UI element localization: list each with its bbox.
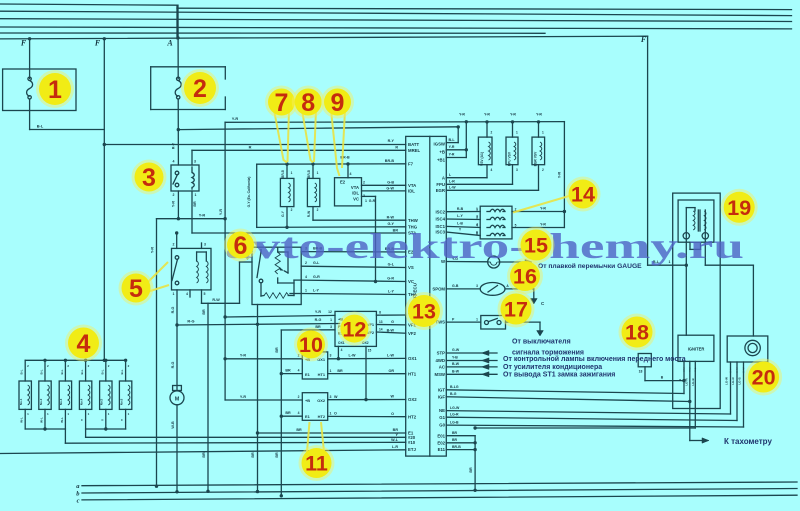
svg-text:Y-R: Y-R: [557, 172, 562, 179]
svg-text:BR: BR: [285, 411, 291, 415]
svg-text:L-B: L-B: [457, 222, 463, 226]
svg-text:B: B: [661, 376, 664, 380]
svg-text:4: 4: [186, 292, 188, 296]
svg-text:1: 1: [67, 412, 69, 416]
svg-text:L-Y: L-Y: [388, 290, 394, 294]
svg-text:1: 1: [730, 367, 732, 371]
svg-text:Y-R: Y-R: [540, 207, 546, 211]
svg-text:G-Y (Ex. California): G-Y (Ex. California): [247, 177, 251, 208]
svg-text:2: 2: [491, 131, 493, 135]
svg-text:LG-B: LG-B: [450, 420, 459, 424]
svg-text:5: 5: [204, 292, 206, 296]
svg-text:R-Y: R-Y: [388, 139, 395, 143]
svg-text:20: 20: [752, 366, 776, 390]
svg-text:4: 4: [173, 160, 175, 164]
svg-text:STP: STP: [437, 351, 445, 356]
svg-text:B-L: B-L: [37, 124, 44, 129]
svg-text:1: 1: [195, 193, 197, 197]
svg-text:4: 4: [350, 172, 352, 176]
svg-text:2: 2: [67, 364, 69, 368]
svg-text:HT1: HT1: [318, 372, 326, 377]
svg-text:No.1: No.1: [19, 398, 23, 405]
svg-text:3: 3: [476, 284, 478, 288]
svg-text:E01: E01: [437, 433, 445, 438]
svg-text:1: 1: [330, 412, 332, 416]
svg-text:Y-R: Y-R: [510, 113, 516, 117]
svg-text:R-G: R-G: [171, 306, 175, 313]
svg-text:2: 2: [27, 364, 29, 368]
svg-text:BR: BR: [452, 438, 458, 442]
svg-text:4: 4: [298, 369, 300, 373]
svg-text:Y-R: Y-R: [150, 247, 154, 253]
svg-text:4: 4: [341, 348, 343, 352]
svg-text:BR: BR: [469, 467, 473, 473]
svg-text:LG-R: LG-R: [731, 377, 735, 385]
svg-text:12: 12: [328, 310, 332, 314]
svg-text:+B1: +B1: [437, 158, 446, 163]
svg-text:O: O: [334, 412, 337, 416]
svg-text:MREL: MREL: [408, 148, 421, 153]
svg-text:ETJ: ETJ: [408, 447, 416, 452]
svg-text:4: 4: [491, 168, 493, 172]
svg-text:От выключателя: От выключателя: [512, 339, 571, 346]
svg-text:B-L: B-L: [120, 369, 124, 374]
svg-text:avto-elektro-shemy.ru: avto-elektro-shemy.ru: [225, 226, 744, 266]
svg-text:B: B: [678, 378, 682, 381]
svg-text:BR: BR: [202, 309, 206, 315]
svg-text:11: 11: [305, 452, 328, 476]
svg-text:LG-B: LG-B: [738, 377, 742, 385]
svg-text:1: 1: [291, 171, 293, 175]
svg-text:1: 1: [476, 317, 478, 321]
svg-text:3: 3: [363, 194, 365, 198]
svg-text:2: 2: [128, 364, 130, 368]
svg-text:HT2: HT2: [318, 414, 326, 419]
svg-text:B-W: B-W: [387, 328, 395, 332]
svg-text:4: 4: [77, 330, 91, 358]
svg-text:B-G: B-G: [450, 392, 457, 396]
svg-text:W: W: [334, 395, 338, 399]
svg-text:Y-R: Y-R: [449, 145, 455, 149]
svg-text:B-LG: B-LG: [450, 385, 459, 389]
svg-text:LG-W: LG-W: [725, 377, 729, 385]
svg-text:BR: BR: [393, 428, 399, 432]
svg-text:O: O: [391, 412, 394, 416]
svg-text:BR: BR: [337, 369, 343, 373]
svg-text:G-B: G-B: [452, 284, 459, 288]
svg-text:G: G: [391, 320, 394, 324]
svg-text:Y: Y: [100, 419, 104, 421]
svg-text:BR: BR: [285, 369, 291, 373]
svg-text:G-R: G-R: [313, 275, 320, 279]
svg-text:IGF: IGF: [438, 394, 446, 399]
svg-text:3: 3: [142, 164, 156, 192]
svg-text:L-Y: L-Y: [457, 214, 463, 218]
svg-text:Y-B: Y-B: [452, 356, 458, 360]
svg-text:No.6: No.6: [119, 398, 123, 405]
svg-text:VC: VC: [408, 279, 414, 284]
svg-text:F: F: [640, 35, 647, 44]
svg-text:No.2: No.2: [39, 398, 43, 405]
svg-text:A: A: [166, 39, 173, 48]
svg-text:R-Y: R-Y: [172, 142, 176, 149]
svg-text:3: 3: [330, 395, 332, 399]
svg-text:Y-R: Y-R: [172, 201, 176, 207]
svg-text:+B: +B: [439, 150, 445, 155]
svg-text:OX1: OX1: [408, 356, 417, 361]
svg-text:1: 1: [47, 412, 49, 416]
svg-text:+B: +B: [305, 398, 310, 403]
svg-text:3: 3: [476, 216, 478, 220]
svg-text:a: a: [76, 483, 80, 490]
svg-text:W: W: [391, 395, 395, 399]
svg-text:3: 3: [743, 367, 745, 371]
svg-text:9: 9: [331, 89, 345, 117]
svg-text:LG-R: LG-R: [685, 378, 689, 386]
svg-text:FPU: FPU: [436, 182, 445, 187]
svg-text:2: 2: [317, 208, 319, 212]
svg-text:14: 14: [379, 328, 383, 332]
svg-text:ISC2: ISC2: [435, 209, 445, 214]
svg-text:2: 2: [88, 364, 90, 368]
svg-text:1: 1: [88, 412, 90, 416]
svg-text:BR-B: BR-B: [452, 445, 461, 449]
svg-text:1: 1: [48, 76, 62, 104]
svg-text:Y-R: Y-R: [459, 113, 465, 117]
svg-text:Y-R: Y-R: [536, 113, 542, 117]
svg-text:B-L: B-L: [80, 369, 84, 374]
svg-text:2: 2: [683, 367, 685, 371]
svg-text:LG-W: LG-W: [450, 406, 460, 410]
svg-text:E1: E1: [305, 372, 311, 377]
svg-text:G1: G1: [439, 415, 445, 420]
svg-text:B-L: B-L: [449, 138, 456, 142]
svg-text:B-L: B-L: [60, 369, 64, 374]
svg-text:2: 2: [363, 181, 365, 185]
svg-text:F: F: [94, 39, 101, 48]
svg-text:1: 1: [27, 412, 29, 416]
svg-text:2: 2: [47, 364, 49, 368]
svg-text:13: 13: [412, 300, 436, 324]
svg-text:G-R: G-R: [369, 199, 376, 203]
svg-text:3: 3: [330, 325, 332, 329]
svg-text:BR: BR: [202, 452, 206, 458]
svg-text:Y-R: Y-R: [484, 113, 490, 117]
svg-text:Y-R: Y-R: [240, 395, 246, 399]
svg-text:16: 16: [513, 265, 537, 289]
svg-text:R-W: R-W: [307, 211, 311, 217]
svg-text:B-W: B-W: [452, 370, 460, 374]
svg-text:OR: OR: [388, 369, 394, 373]
svg-text:1: 1: [365, 199, 367, 203]
svg-text:R-G: R-G: [171, 361, 175, 368]
svg-text:L-Y: L-Y: [313, 289, 319, 293]
svg-text:E2: E2: [340, 180, 346, 185]
svg-text:R: R: [395, 146, 398, 150]
svg-text:От вывода ST1 замка зажигания: От вывода ST1 замка зажигания: [503, 372, 615, 379]
svg-text:VTA: VTA: [408, 183, 416, 188]
svg-text:2: 2: [193, 75, 207, 103]
svg-text:NE: NE: [439, 408, 445, 413]
svg-text:L-R: L-R: [449, 180, 455, 184]
svg-text:4: 4: [694, 367, 696, 371]
svg-text:3: 3: [330, 354, 332, 358]
svg-text:B-L: B-L: [100, 369, 104, 374]
svg-text:2: 2: [108, 364, 110, 368]
svg-text:G-W: G-W: [386, 186, 394, 190]
svg-text:IGT: IGT: [438, 387, 446, 392]
svg-text:FPU VSV: FPU VSV: [508, 151, 512, 166]
svg-text:L-W: L-W: [449, 186, 456, 190]
svg-text:18: 18: [625, 321, 649, 345]
svg-text:2: 2: [291, 208, 293, 212]
svg-text:c: c: [77, 497, 80, 504]
svg-text:1: 1: [128, 412, 130, 416]
svg-text:13: 13: [379, 320, 383, 324]
svg-text:2: 2: [542, 168, 544, 172]
svg-text:L-W: L-W: [349, 354, 356, 358]
svg-text:BR: BR: [251, 452, 255, 458]
svg-text:1: 1: [317, 171, 319, 175]
svg-text:HT1: HT1: [408, 371, 417, 376]
svg-text:G0: G0: [439, 423, 445, 428]
svg-text:VSV (A1): VSV (A1): [480, 152, 484, 166]
svg-text:3: 3: [194, 160, 196, 164]
svg-text:R-W: R-W: [387, 215, 395, 219]
svg-text:1: 1: [305, 289, 307, 293]
svg-text:G-W: G-W: [452, 348, 460, 352]
svg-text:C: C: [541, 301, 545, 306]
svg-text:17: 17: [504, 298, 528, 322]
svg-text:1: 1: [542, 131, 544, 135]
svg-text:#10: #10: [408, 440, 416, 445]
svg-text:A: A: [506, 284, 509, 288]
svg-text:IDL: IDL: [352, 191, 359, 196]
svg-text:L-R: L-R: [392, 445, 398, 449]
svg-text:A: A: [442, 175, 445, 180]
svg-text:LG-R: LG-R: [450, 412, 459, 416]
svg-text:VF2: VF2: [408, 331, 416, 336]
svg-text:18: 18: [639, 369, 643, 373]
svg-text:BR: BR: [452, 431, 458, 435]
svg-text:HT2: HT2: [408, 414, 417, 419]
svg-text:2: 2: [298, 395, 300, 399]
svg-text:Y-R: Y-R: [199, 213, 206, 218]
svg-text:OX2: OX2: [317, 398, 326, 403]
svg-text:G-Y: G-Y: [281, 210, 285, 217]
svg-text:R-G: R-G: [187, 319, 194, 324]
svg-text:От усилителя кондиционера: От усилителя кондиционера: [503, 364, 602, 371]
svg-text:B-L: B-L: [20, 369, 24, 374]
svg-text:3: 3: [516, 168, 518, 172]
svg-text:EGR: EGR: [436, 188, 446, 193]
svg-text:BR-B: BR-B: [307, 169, 311, 178]
svg-text:BR: BR: [193, 201, 197, 207]
svg-text:BR: BR: [275, 347, 279, 353]
svg-text:Y-R: Y-R: [315, 310, 321, 314]
svg-text:M: M: [175, 396, 180, 402]
svg-text:R-G: R-G: [315, 318, 322, 322]
svg-text:Y-R: Y-R: [232, 116, 239, 121]
svg-text:W-L: W-L: [391, 438, 399, 442]
svg-text:ISC4: ISC4: [435, 217, 445, 222]
svg-text:Y-R: Y-R: [240, 354, 246, 358]
svg-text:BR-B: BR-B: [385, 159, 395, 163]
svg-text:VTA: VTA: [351, 185, 359, 190]
svg-text:3: 3: [204, 243, 206, 247]
svg-text:VC: VC: [353, 197, 359, 202]
svg-text:К тахометру: К тахометру: [724, 437, 772, 446]
svg-text:E1: E1: [305, 414, 311, 419]
svg-text:BR-B: BR-B: [281, 169, 285, 178]
svg-text:L: L: [449, 173, 452, 177]
svg-text:F: F: [20, 39, 27, 48]
svg-text:19: 19: [727, 196, 751, 220]
svg-text:EGR VSV: EGR VSV: [534, 151, 538, 166]
svg-text:2: 2: [173, 193, 175, 197]
svg-text:IDL: IDL: [408, 189, 415, 194]
svg-text:1: 1: [173, 292, 175, 296]
svg-text:IGNITER: IGNITER: [688, 347, 705, 352]
svg-text:G-R: G-R: [387, 277, 394, 281]
svg-text:4: 4: [305, 275, 307, 279]
svg-text:G-B: G-B: [387, 181, 394, 185]
svg-text:8: 8: [301, 89, 315, 117]
svg-text:IGSW: IGSW: [434, 142, 446, 147]
svg-text:4WD: 4WD: [435, 358, 445, 363]
svg-text:W-L: W-L: [40, 417, 44, 423]
svg-text:W-B: W-B: [171, 421, 175, 429]
svg-text:No.3: No.3: [59, 398, 63, 405]
svg-text:1: 1: [108, 412, 110, 416]
svg-text:4: 4: [298, 411, 300, 415]
svg-text:BR: BR: [275, 452, 279, 458]
svg-text:Y-R: Y-R: [219, 209, 223, 215]
svg-text:B-L: B-L: [40, 369, 44, 374]
svg-text:R-B: R-B: [457, 207, 464, 211]
svg-text:3: 3: [689, 367, 691, 371]
svg-text:THW: THW: [408, 218, 419, 223]
svg-text:7: 7: [275, 89, 289, 117]
svg-text:MSW: MSW: [434, 372, 445, 377]
svg-text:BR: BR: [296, 428, 302, 432]
svg-text:OX2: OX2: [408, 397, 417, 402]
svg-text:12: 12: [342, 317, 366, 341]
svg-text:W-L: W-L: [60, 417, 64, 423]
svg-text:B-W: B-W: [452, 362, 460, 366]
svg-text:10: 10: [299, 333, 323, 357]
svg-text:R: R: [249, 145, 252, 150]
svg-text:Y: Y: [80, 419, 84, 421]
svg-text:SPOM: SPOM: [432, 287, 445, 292]
svg-text:Y: Y: [120, 419, 124, 421]
svg-text:14: 14: [571, 183, 595, 207]
svg-text:No.5: No.5: [100, 398, 104, 405]
svg-text:E02: E02: [437, 440, 445, 445]
svg-text:1: 1: [516, 131, 518, 135]
svg-text:2: 2: [173, 243, 175, 247]
svg-text:LG-B: LG-B: [691, 378, 695, 386]
svg-text:1: 1: [330, 369, 332, 373]
svg-text:5: 5: [129, 275, 143, 303]
svg-text:E11: E11: [438, 447, 446, 452]
svg-text:6: 6: [234, 232, 248, 260]
svg-text:L-W: L-W: [387, 354, 394, 358]
svg-text:2: 2: [736, 367, 738, 371]
svg-text:15: 15: [368, 349, 372, 353]
svg-text:AC: AC: [439, 365, 445, 370]
svg-text:Y-R: Y-R: [449, 153, 455, 157]
svg-text:No.4: No.4: [79, 398, 83, 405]
svg-text:От контрольной лампы включения: От контрольной лампы включения переднего…: [503, 355, 686, 363]
svg-text:15: 15: [524, 234, 548, 258]
svg-text:1: 1: [476, 208, 478, 212]
svg-text:P: P: [452, 317, 455, 321]
svg-text:1: 1: [330, 318, 332, 322]
svg-text:8: 8: [379, 310, 381, 314]
svg-text:F7: F7: [408, 161, 414, 166]
svg-text:BATT: BATT: [408, 142, 420, 147]
svg-text:W-L: W-L: [20, 417, 24, 423]
svg-text:R-W: R-W: [212, 298, 220, 302]
